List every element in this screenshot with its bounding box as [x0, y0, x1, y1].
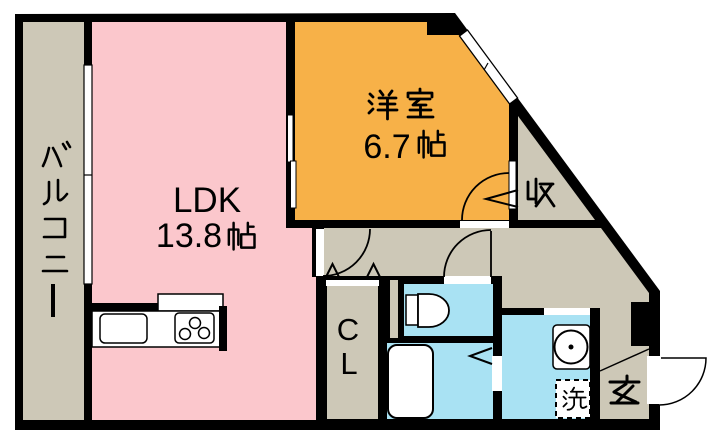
svg-text:6.7: 6.7: [363, 128, 410, 166]
svg-text:13.8: 13.8: [156, 217, 222, 255]
svg-text:L: L: [340, 346, 357, 381]
svg-text:C: C: [337, 312, 359, 347]
svg-text:LDK: LDK: [173, 181, 241, 220]
